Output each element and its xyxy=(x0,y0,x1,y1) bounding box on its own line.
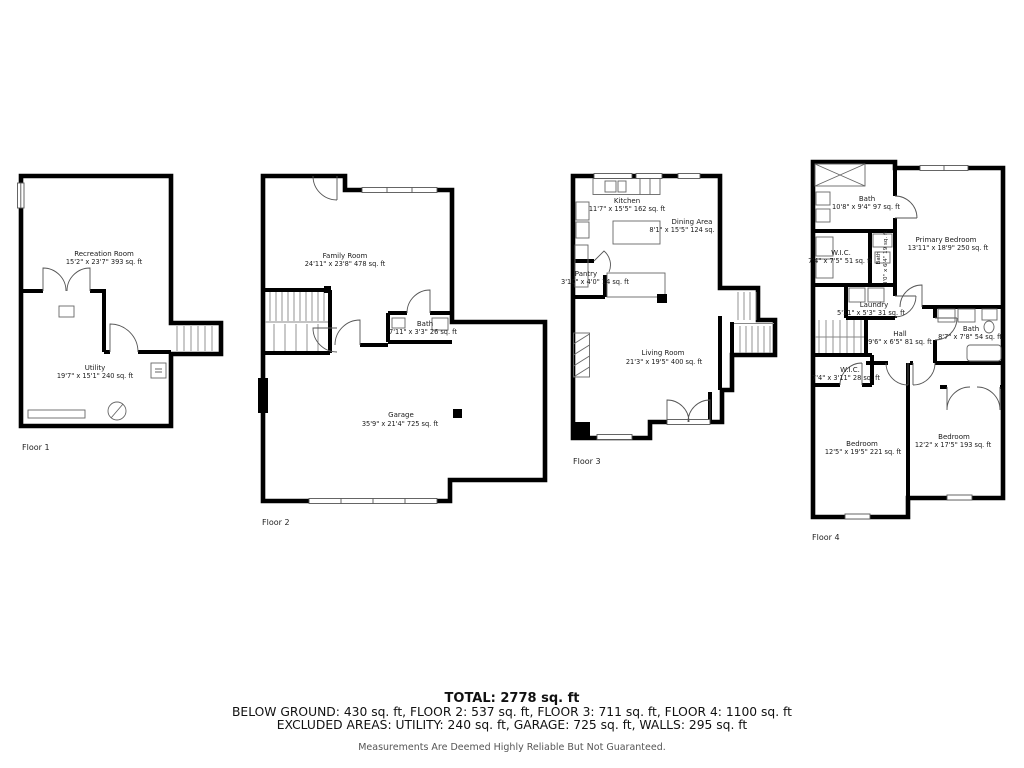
room-label-living-room-dims: 21'3" x 19'5" 400 sq. ft xyxy=(626,358,703,366)
room-label-wic-top-name: W.I.C. xyxy=(831,249,851,257)
room-label-utility-name: Utility xyxy=(85,364,106,372)
room-label-garage-name: Garage xyxy=(388,411,414,419)
floor-3-plan: Kitchen 11'7" x 15'5" 162 sq. ft Dining … xyxy=(561,174,775,467)
room-label-utility-dims: 19'7" x 15'1" 240 sq. ft xyxy=(57,372,134,380)
room-label-recreation-room-dims: 15'2" x 23'7" 393 sq. ft xyxy=(66,258,143,266)
excluded-areas-text: EXCLUDED AREAS: UTILITY: 240 sq. ft, GAR… xyxy=(0,719,1024,732)
room-label-bath-small-name: Bath xyxy=(876,251,882,264)
room-label-dining-area-name: Dining Area xyxy=(672,218,713,226)
floor-1-plan: Recreation Room 15'2" x 23'7" 393 sq. ft… xyxy=(18,176,222,452)
room-label-primary-bedroom-name: Primary Bedroom xyxy=(916,236,977,244)
room-label-bath-right-dims: 8'7" x 7'8" 54 sq. ft xyxy=(938,333,1002,341)
room-label-bedroom-left-name: Bedroom xyxy=(846,440,878,448)
room-label-laundry-dims: 5'11" x 5'3" 31 sq. ft xyxy=(837,309,905,317)
room-label-dining-area-dims: 8'1" x 15'5" 124 sq. xyxy=(649,226,714,234)
floor-areas-text: BELOW GROUND: 430 sq. ft, FLOOR 2: 537 s… xyxy=(0,706,1024,719)
room-label-kitchen-dims: 11'7" x 15'5" 162 sq. ft xyxy=(589,205,666,213)
floorplan-page: Recreation Room 15'2" x 23'7" 393 sq. ft… xyxy=(0,0,1024,768)
room-label-bath-top-name: Bath xyxy=(859,195,875,203)
room-label-bath2-name: Bath xyxy=(417,320,433,328)
room-label-wic-bottom-name: W.I.C. xyxy=(840,366,860,374)
disclaimer-text: Measurements Are Deemed Highly Reliable … xyxy=(0,742,1024,753)
room-label-laundry-name: Laundry xyxy=(860,301,889,309)
total-area-text: TOTAL: 2778 sq. ft xyxy=(0,692,1024,706)
summary-block: TOTAL: 2778 sq. ft BELOW GROUND: 430 sq.… xyxy=(0,692,1024,753)
room-label-bath-top-dims: 10'8" x 9'4" 97 sq. ft xyxy=(832,203,900,211)
room-label-bath-small-dims: 3'0" x 6'4" 19 sq. ft xyxy=(883,230,889,285)
floor-1-label: Floor 1 xyxy=(22,443,50,452)
floorplan-image: Recreation Room 15'2" x 23'7" 393 sq. ft… xyxy=(0,0,1024,768)
room-label-bath-right-name: Bath xyxy=(963,325,979,333)
floor-4-plan: Bath 10'8" x 9'4" 97 sq. ft W.I.C. 7'4" … xyxy=(808,162,1003,542)
room-label-kitchen-name: Kitchen xyxy=(614,197,640,205)
room-label-living-room-name: Living Room xyxy=(642,349,685,357)
room-label-bath2-dims: 7'11" x 3'3" 26 sq. ft xyxy=(389,328,457,336)
room-label-bedroom-left-dims: 12'5" x 19'5" 221 sq. ft xyxy=(825,448,902,456)
floor-4-label: Floor 4 xyxy=(812,533,840,542)
room-label-garage-dims: 35'9" x 21'4" 725 sq. ft xyxy=(362,420,439,428)
floor-3-label: Floor 3 xyxy=(573,457,601,466)
room-label-wic-top-dims: 7'4" x 7'5" 51 sq. ft xyxy=(808,257,872,265)
room-label-bedroom-right-name: Bedroom xyxy=(938,433,970,441)
room-label-wic-bottom-dims: 7'4" x 3'11" 28 sq. ft xyxy=(812,374,880,382)
room-label-primary-bedroom-dims: 13'11" x 18'9" 250 sq. ft xyxy=(908,244,989,252)
floor-2-plan: Family Room 24'11" x 23'8" 478 sq. ft Ba… xyxy=(258,176,545,527)
room-label-recreation-room-name: Recreation Room xyxy=(74,250,134,258)
room-label-pantry-name: Pantry xyxy=(575,270,597,278)
room-label-bedroom-right-dims: 12'2" x 17'5" 193 sq. ft xyxy=(915,441,992,449)
floor-2-label: Floor 2 xyxy=(262,518,290,527)
room-label-hall-name: Hall xyxy=(893,330,906,338)
room-label-pantry-dims: 3'10" x 4'0" 14 sq. ft xyxy=(561,278,629,286)
room-label-hall-dims: 9'6" x 6'5" 81 sq. ft xyxy=(868,338,932,346)
room-label-family-room-dims: 24'11" x 23'8" 478 sq. ft xyxy=(305,260,386,268)
room-label-family-room-name: Family Room xyxy=(323,252,368,260)
